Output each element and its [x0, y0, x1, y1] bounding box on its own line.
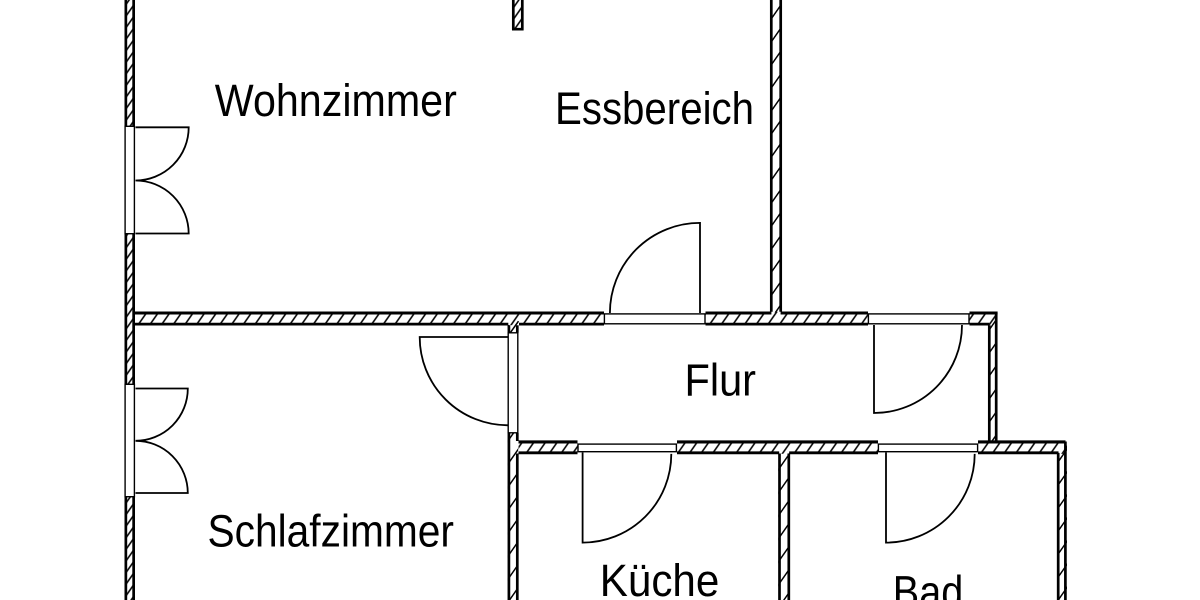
svg-text:Essbereich: Essbereich	[555, 83, 754, 134]
svg-text:Flur: Flur	[685, 355, 757, 406]
svg-text:Schlafzimmer: Schlafzimmer	[208, 505, 455, 556]
svg-text:Küche: Küche	[600, 555, 720, 600]
svg-text:Wohnzimmer: Wohnzimmer	[215, 75, 457, 126]
svg-text:Bad: Bad	[893, 567, 964, 600]
